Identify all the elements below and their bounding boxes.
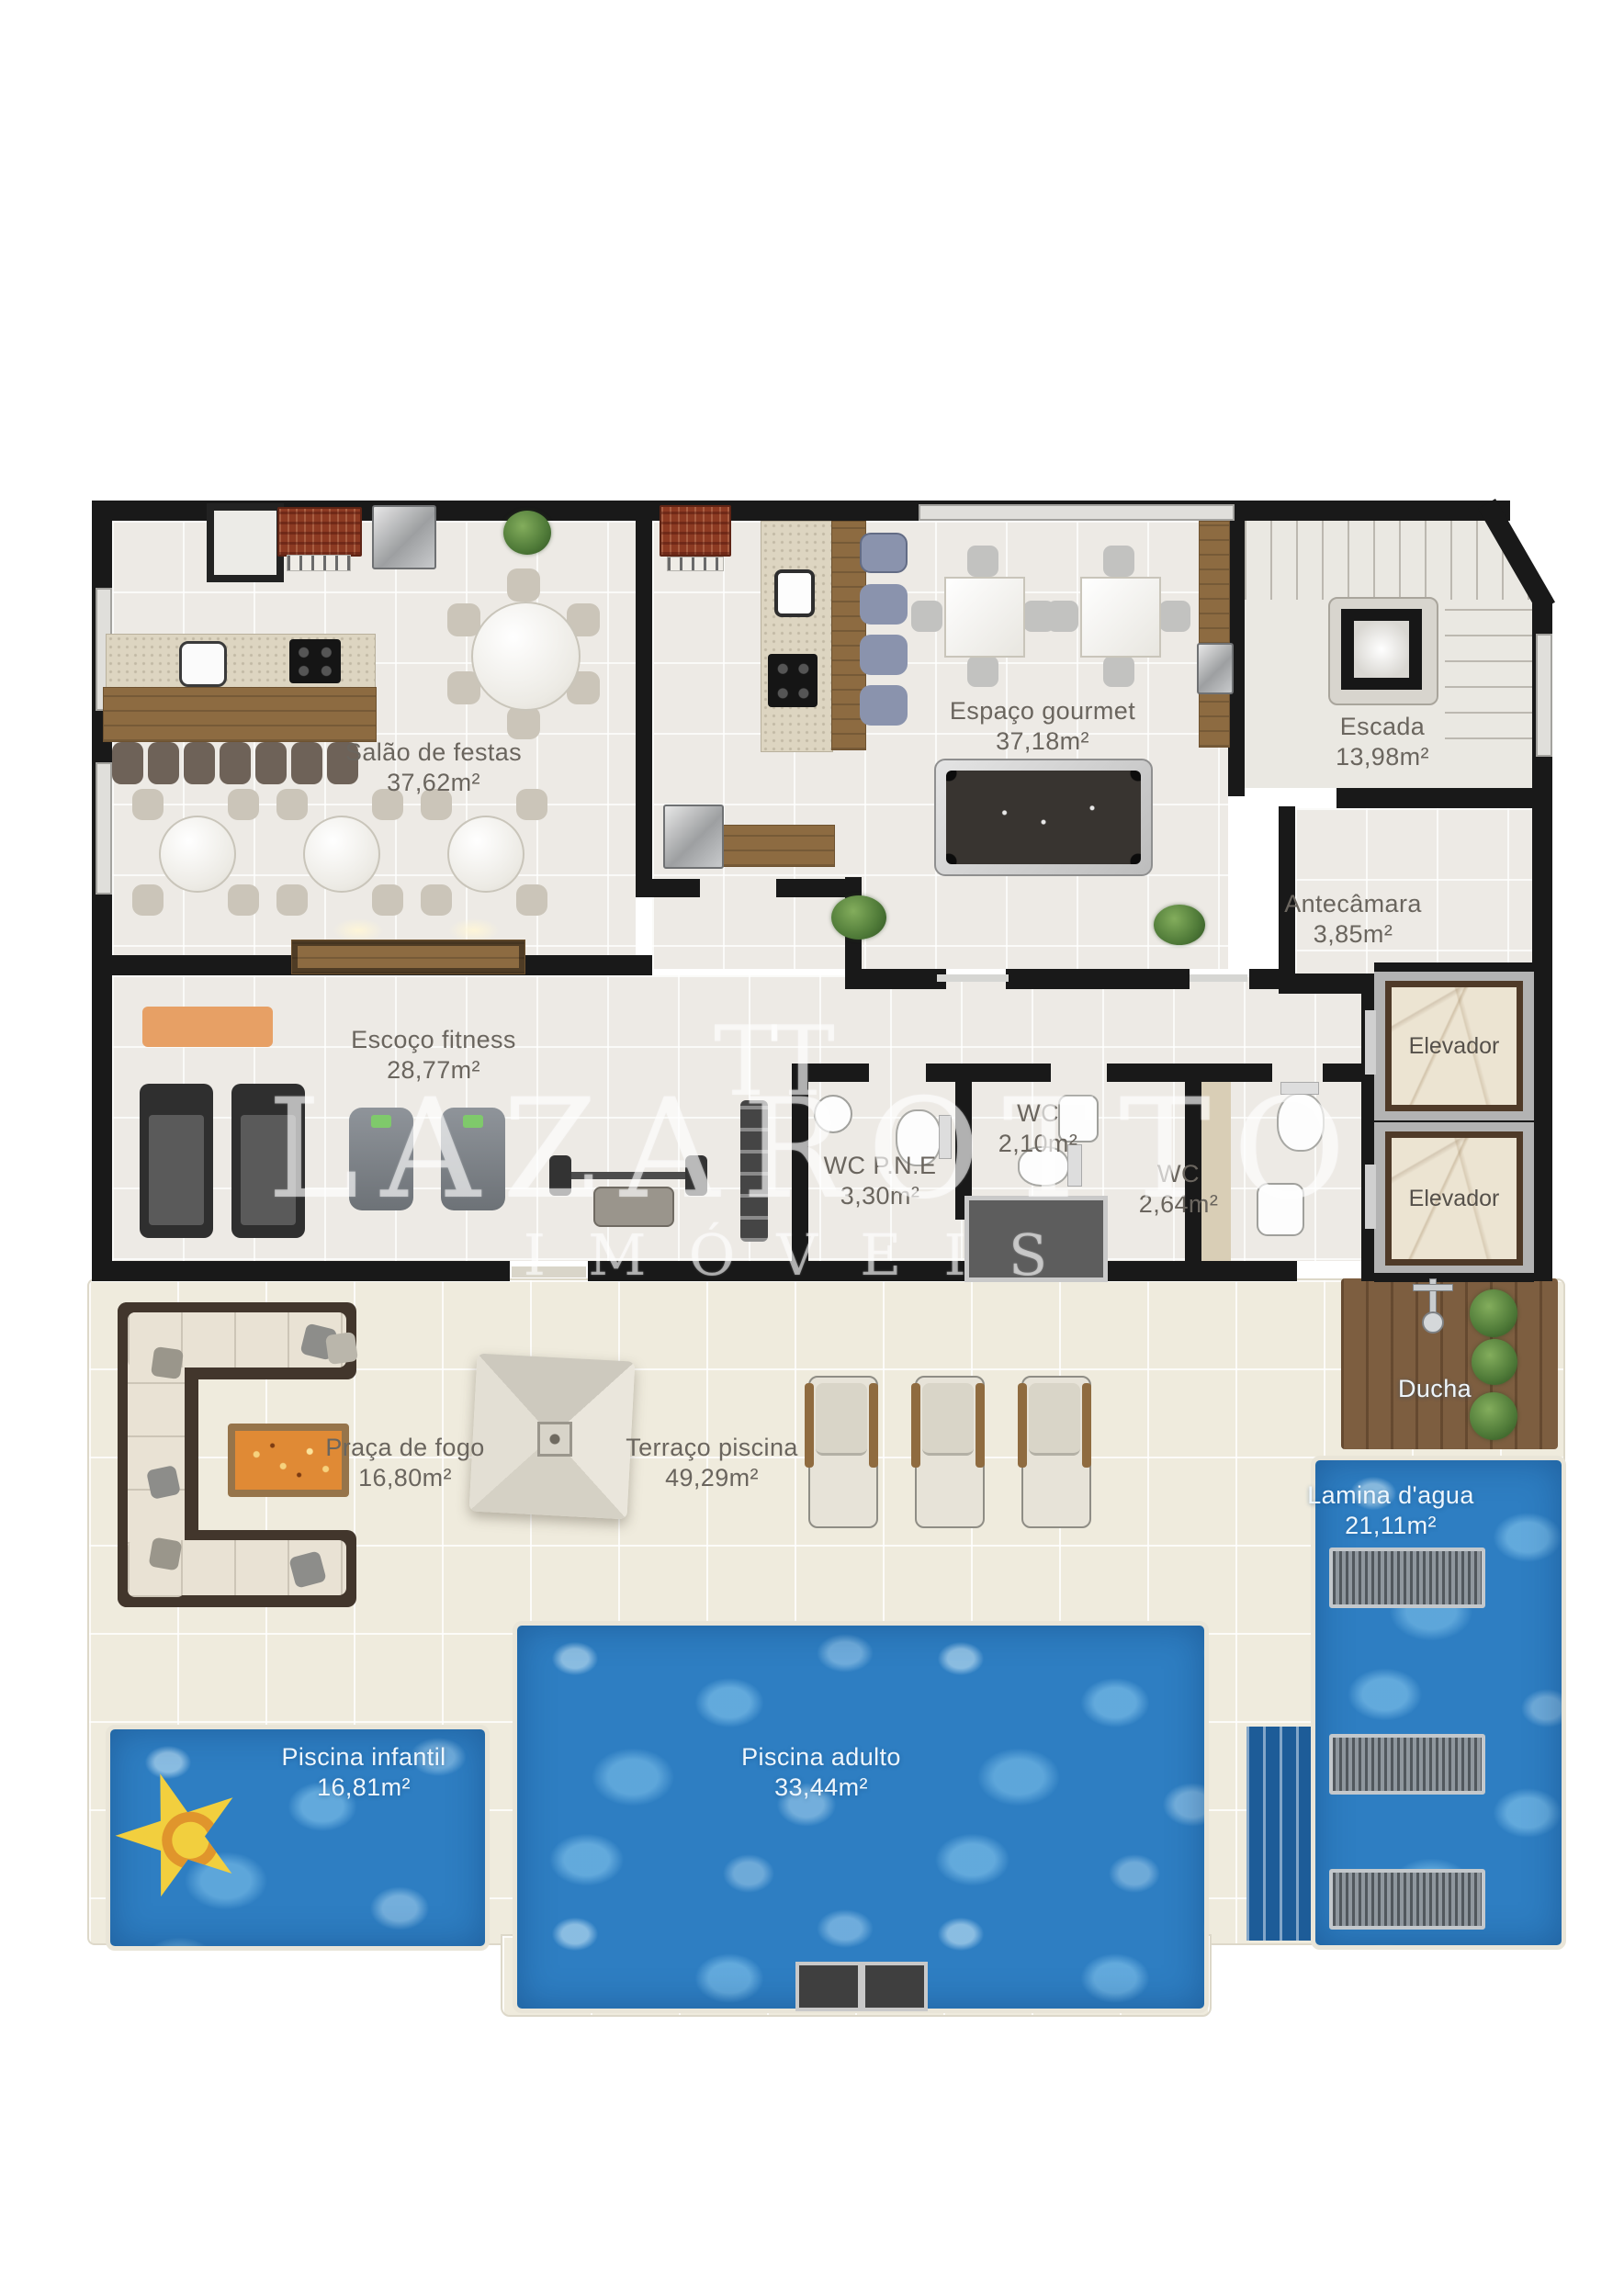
wall	[92, 1261, 510, 1281]
room-area: 37,62m²	[387, 768, 480, 798]
pillow	[148, 1536, 182, 1570]
wall	[1006, 969, 1190, 989]
wall	[636, 879, 700, 897]
lounger-rail	[976, 1383, 985, 1468]
room-name: Salão de festas	[345, 737, 522, 768]
lounger-rail	[805, 1383, 814, 1468]
bar-stool	[860, 533, 908, 573]
label-ducha: Ducha	[1398, 1374, 1472, 1404]
room-name: Terraço piscina	[626, 1433, 798, 1463]
room-area: 28,77m²	[387, 1055, 480, 1086]
coffee-machine	[179, 641, 227, 687]
wall	[588, 1261, 1297, 1281]
room-name: Antecâmara	[1284, 889, 1422, 919]
room-area: 3,30m²	[840, 1181, 919, 1211]
label-wc-1: WC 2,10m²	[998, 1098, 1077, 1160]
label-antecamara: Antecâmara 3,85m²	[1284, 889, 1422, 951]
shower-box	[964, 1196, 1108, 1282]
wall	[636, 521, 652, 897]
grill-utensils	[667, 557, 724, 571]
fridge	[663, 805, 724, 869]
pillow	[325, 1332, 358, 1365]
room-name: WC	[1157, 1159, 1200, 1189]
elevator-label: Elevador	[1392, 987, 1517, 1105]
lounger-rail	[1018, 1383, 1027, 1468]
plant	[503, 511, 551, 555]
room-name: Escada	[1340, 712, 1425, 742]
room-area: 49,29m²	[665, 1463, 759, 1493]
plant	[831, 895, 886, 940]
plant	[1470, 1289, 1517, 1337]
pool-grate	[1329, 1869, 1485, 1930]
window	[919, 504, 1235, 521]
elevator-door	[1365, 1165, 1376, 1229]
lounger-backrest	[816, 1383, 867, 1456]
sink	[814, 1095, 852, 1133]
round-marble-table	[471, 602, 581, 711]
cooktop	[289, 639, 341, 683]
steel-cabinet	[372, 505, 436, 569]
chair	[967, 546, 998, 577]
pillow	[146, 1465, 181, 1500]
room-area: 37,18m²	[996, 726, 1089, 757]
room-area: 13,98m²	[1336, 742, 1429, 772]
bench	[593, 1187, 674, 1227]
wall-niche	[207, 503, 284, 582]
room-name: WC P.N.E	[824, 1151, 937, 1181]
treadmill-belt	[149, 1115, 204, 1225]
round-table	[159, 816, 236, 893]
room-area: 2,64m²	[1139, 1189, 1218, 1220]
stair-treads-right	[1445, 600, 1532, 739]
room-name: Piscina adulto	[741, 1742, 901, 1773]
pool-mat	[862, 1962, 928, 2011]
wall	[845, 969, 946, 989]
barbecue-grill	[660, 505, 731, 557]
wall	[792, 1082, 808, 1281]
elevator-cab: Elevador	[1385, 1131, 1523, 1266]
lounger-rail	[911, 1383, 920, 1468]
label-espaco-fitness: Escoço fitness 28,77m²	[351, 1025, 516, 1086]
glass-door	[1190, 974, 1247, 982]
room-area: 16,81m²	[317, 1773, 411, 1803]
room-name: Ducha	[1398, 1374, 1472, 1404]
sideboard	[291, 940, 525, 974]
lounger-rail	[869, 1383, 878, 1468]
weight-plate	[549, 1155, 571, 1196]
label-wc-pne: WC P.N.E 3,30m²	[824, 1151, 937, 1212]
square-table	[944, 577, 1025, 658]
plant	[1472, 1339, 1517, 1385]
pool-grate	[1329, 1548, 1485, 1608]
toilet-tank	[939, 1115, 952, 1159]
umbrella-pole	[537, 1422, 572, 1457]
weight-plate	[685, 1155, 707, 1196]
elevator-door	[1365, 1010, 1376, 1075]
chair	[132, 789, 164, 820]
lounger-backrest	[922, 1383, 974, 1456]
room-area: 21,11m²	[1345, 1511, 1437, 1541]
floor-plan: Elevador Elevador	[0, 0, 1624, 2296]
label-lamina-dagua: Lamina d'agua 21,11m²	[1307, 1480, 1474, 1542]
stair-void-core	[1354, 621, 1409, 678]
label-praca-de-fogo: Praça de fogo 16,80m²	[325, 1433, 484, 1494]
shower-head	[1422, 1311, 1444, 1334]
wall	[1107, 1064, 1272, 1082]
bike-screen	[463, 1115, 483, 1128]
shower-arm	[1413, 1284, 1453, 1291]
toilet	[1277, 1093, 1325, 1152]
label-terraco-piscina: Terraço piscina 49,29m²	[626, 1433, 798, 1494]
toilet-tank	[1280, 1082, 1319, 1095]
label-piscina-infantil: Piscina infantil 16,81m²	[282, 1742, 446, 1804]
sink	[1257, 1183, 1304, 1236]
elevator-cab: Elevador	[1385, 981, 1523, 1111]
wall	[1249, 969, 1280, 989]
label-espaco-gourmet: Espaço gourmet 37,18m²	[950, 696, 1135, 758]
elevator-label: Elevador	[1392, 1138, 1517, 1259]
room-name: Piscina infantil	[282, 1742, 446, 1773]
counter	[761, 521, 833, 752]
door-threshold	[512, 1266, 586, 1277]
exercise-mat	[142, 1007, 273, 1047]
room-name: Praça de fogo	[325, 1433, 484, 1463]
cooktop	[768, 654, 818, 707]
lounger-backrest	[1029, 1383, 1080, 1456]
label-wc-2: WC 2,64m²	[1139, 1159, 1218, 1221]
billiard-felt	[946, 771, 1141, 864]
wall	[1336, 788, 1552, 808]
glass-door	[937, 974, 1009, 982]
wall	[92, 501, 636, 521]
adult-pool	[513, 1621, 1209, 2013]
treadmill-belt	[241, 1115, 296, 1225]
plant	[1154, 905, 1205, 945]
barbecue-grill	[277, 507, 362, 557]
wall	[1279, 501, 1510, 521]
grill-utensils	[287, 555, 351, 571]
wall	[926, 1064, 1051, 1082]
pool-mat	[795, 1962, 862, 2011]
lounger-rail	[1082, 1383, 1091, 1468]
pool-grate	[1329, 1734, 1485, 1795]
label-escada: Escada 13,98m²	[1336, 712, 1429, 773]
room-area: 2,10m²	[998, 1129, 1077, 1159]
square-table	[1080, 577, 1161, 658]
wall	[792, 1064, 869, 1082]
chair	[1103, 546, 1134, 577]
room-area: 3,85m²	[1314, 919, 1393, 950]
round-table	[303, 816, 380, 893]
stair-treads-top	[1245, 521, 1532, 600]
shower-deck	[1341, 1278, 1558, 1449]
counter	[721, 825, 835, 867]
window	[1536, 634, 1552, 757]
label-salao-de-festas: Salão de festas 37,62m²	[345, 737, 522, 799]
side-counter	[1199, 521, 1230, 748]
appliance	[1197, 643, 1234, 694]
bike-screen	[371, 1115, 391, 1128]
pillow	[151, 1346, 184, 1379]
round-table	[447, 816, 524, 893]
dumbbell-rack	[740, 1100, 768, 1242]
bar-counter	[103, 687, 377, 742]
plant	[1470, 1392, 1517, 1440]
pool-steps	[1246, 1727, 1311, 1941]
sink	[774, 569, 815, 617]
room-name: Lamina d'agua	[1307, 1480, 1474, 1511]
chair	[276, 789, 308, 820]
wall	[776, 879, 845, 897]
room-name: WC	[1017, 1098, 1059, 1129]
billiard-table	[934, 759, 1153, 876]
room-area: 33,44m²	[774, 1773, 868, 1803]
room-name: Escoço fitness	[351, 1025, 516, 1055]
room-name: Espaço gourmet	[950, 696, 1135, 726]
window	[96, 762, 112, 895]
label-piscina-adulto: Piscina adulto 33,44m²	[741, 1742, 901, 1804]
room-area: 16,80m²	[358, 1463, 452, 1493]
bar-stool	[112, 742, 143, 784]
